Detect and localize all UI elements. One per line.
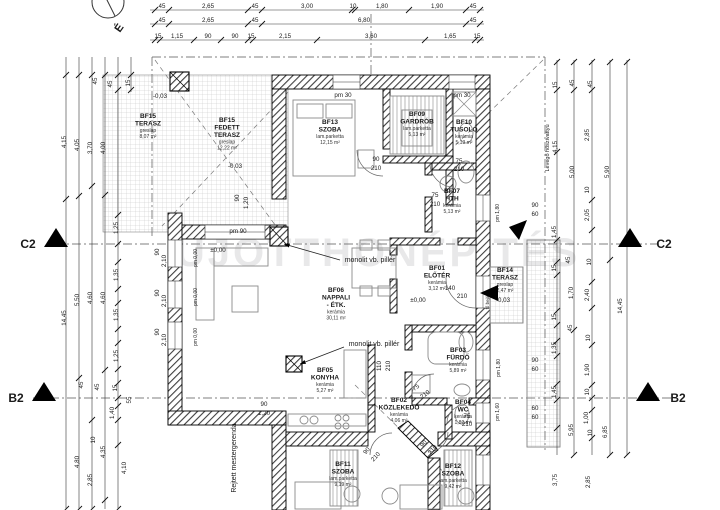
dim-text: 4,00 bbox=[100, 141, 107, 154]
dim-text: 2,10 bbox=[161, 333, 168, 346]
section-marker-triangle bbox=[44, 228, 68, 247]
dim-text: 1,35 bbox=[551, 341, 558, 354]
section-marker-triangle bbox=[32, 382, 56, 401]
wall bbox=[383, 89, 390, 149]
dim-text: pm 30 bbox=[453, 92, 471, 99]
annotation-text: monolit vb. pillér bbox=[349, 341, 400, 348]
dim-text: 45 bbox=[94, 383, 101, 390]
dim-text: 5,95 bbox=[568, 423, 575, 436]
north-arrow-layer: É bbox=[92, 0, 127, 35]
dim-text: 60 bbox=[532, 414, 539, 421]
dim-text: 10 bbox=[90, 436, 97, 443]
dim-text: 45 bbox=[92, 77, 99, 84]
dim-text: 15 bbox=[474, 33, 481, 40]
dim-text: pm 30 bbox=[334, 92, 352, 99]
dim-text: 1,25 bbox=[113, 221, 120, 234]
dim-text: 2,40 bbox=[584, 288, 591, 301]
annotation-text: monolit vb. pillér bbox=[345, 257, 396, 264]
dim-text: 10 bbox=[587, 429, 594, 436]
wall bbox=[368, 405, 375, 432]
dim-text: 2,15 bbox=[279, 33, 292, 40]
dim-text: pm 1,60 bbox=[495, 403, 501, 421]
room-name: WC bbox=[458, 407, 469, 414]
dim-text: 210 bbox=[385, 360, 392, 371]
dim-text: 1,45 bbox=[551, 225, 558, 238]
dim-text: 10 bbox=[584, 388, 591, 395]
dim-text: 6,80 bbox=[358, 17, 371, 24]
dim-text: 4,15 bbox=[552, 140, 559, 153]
dim-text: 45 bbox=[159, 3, 166, 10]
dim-text: 4,60 bbox=[100, 291, 107, 304]
room-name: NAPPALI bbox=[322, 295, 350, 302]
dim-text: 210 bbox=[371, 165, 382, 172]
dim-text: 60 bbox=[532, 405, 539, 412]
furniture bbox=[360, 286, 372, 296]
section-marker-triangle bbox=[618, 228, 642, 247]
dim-text: 110 bbox=[376, 361, 383, 371]
dim-text: 10 bbox=[584, 186, 591, 193]
dim-text: 2,85 bbox=[585, 475, 592, 488]
dim-text: 14,45 bbox=[617, 298, 624, 314]
room-name: BF03 bbox=[450, 347, 466, 354]
dim-text: 5,00 bbox=[569, 165, 576, 178]
dim-text: 210 bbox=[370, 450, 382, 463]
room-name: BF13 bbox=[322, 119, 338, 126]
dim-text: 90 bbox=[205, 33, 212, 40]
room-name: BF01 bbox=[429, 265, 445, 272]
room-name: TERASZ bbox=[492, 275, 518, 282]
furniture bbox=[232, 286, 258, 312]
room-area: 3,12 m² bbox=[429, 286, 446, 292]
dim-text: 4,05 bbox=[74, 138, 81, 151]
dim-text: 45 bbox=[470, 3, 477, 10]
room-name: SZOBA bbox=[332, 469, 355, 476]
dim-text: 1,40 bbox=[109, 406, 116, 419]
dim-text: 140 bbox=[445, 285, 456, 292]
furniture bbox=[378, 286, 390, 296]
room-name: BF10 bbox=[456, 119, 472, 126]
dim-text: 4,10 bbox=[121, 461, 128, 474]
room-area: 1,80 m² bbox=[455, 420, 472, 426]
room-name: BF14 bbox=[497, 267, 513, 274]
room-name: TUSOLÓ bbox=[450, 125, 477, 134]
wall bbox=[383, 156, 453, 163]
dim-text: pm 0,00 bbox=[193, 249, 199, 267]
room-name: BF06 bbox=[328, 287, 344, 294]
dim-text: 90 bbox=[532, 357, 539, 364]
wall bbox=[412, 325, 476, 332]
dim-text: 45 bbox=[107, 80, 114, 87]
furniture bbox=[300, 416, 308, 424]
furniture bbox=[382, 488, 398, 504]
dim-text: 210 bbox=[454, 166, 465, 173]
room-name: SZOBA bbox=[319, 127, 342, 134]
dim-text: 45 bbox=[587, 80, 594, 87]
dim-text: 1,00 bbox=[583, 411, 590, 424]
leader-line bbox=[300, 347, 344, 364]
dim-text: 90 bbox=[261, 401, 268, 408]
dim-text: 2,10 bbox=[161, 294, 168, 307]
wall bbox=[445, 405, 452, 439]
dim-text: 2,65 bbox=[202, 3, 215, 10]
room-name: TERASZ bbox=[135, 121, 161, 128]
room-area: 5,27 m² bbox=[317, 388, 334, 394]
dim-text: 90 bbox=[154, 289, 161, 296]
room-label-bf07: BF07HTHkerámia5,13 m² bbox=[443, 188, 461, 215]
dim-text: 6,85 bbox=[602, 425, 609, 438]
wall bbox=[368, 345, 375, 405]
floor-plan-page: ÚJOTTHONÉPÍTÉS452,65453,00101,801,904545… bbox=[0, 0, 720, 510]
dim-text: 14,45 bbox=[61, 310, 68, 326]
dim-text: 4,80 bbox=[74, 455, 81, 468]
room-area: 12,22 m² bbox=[217, 146, 237, 152]
dim-text: 1,15 bbox=[171, 33, 184, 40]
dim-text: 90 bbox=[532, 202, 539, 209]
room-name: TERASZ bbox=[214, 132, 240, 139]
terrace-grid bbox=[103, 75, 288, 232]
furniture bbox=[326, 104, 352, 118]
room-name: GARDRÓB bbox=[400, 117, 434, 126]
furniture bbox=[343, 415, 349, 421]
furniture bbox=[310, 416, 318, 424]
dim-text: 4,15 bbox=[61, 135, 68, 148]
wall bbox=[272, 425, 286, 510]
dim-text: ±0,00 bbox=[410, 297, 426, 304]
dim-text: 45 bbox=[159, 17, 166, 24]
door-swing bbox=[370, 433, 392, 455]
furniture bbox=[454, 384, 470, 396]
wall bbox=[390, 238, 440, 245]
furniture bbox=[344, 350, 366, 398]
dim-text: 75 bbox=[432, 192, 439, 199]
dim-text: 15 bbox=[551, 264, 558, 271]
dim-text: 45 bbox=[252, 17, 259, 24]
room-area: 30,11 m² bbox=[326, 316, 346, 322]
dim-text: 1,35 bbox=[113, 308, 120, 321]
room-name: KONYHA bbox=[311, 375, 339, 382]
room-area: 5,13 m² bbox=[456, 140, 473, 146]
dim-text: pm 0,00 bbox=[193, 288, 199, 306]
room-area: 9,19 m² bbox=[335, 482, 352, 488]
wall bbox=[286, 432, 368, 446]
dim-text: 60 bbox=[532, 211, 539, 218]
room-label-bf03: BF03FÜRDŐkerámia5,89 m² bbox=[446, 347, 469, 374]
wall bbox=[458, 238, 476, 245]
dim-text: 15 bbox=[551, 313, 558, 320]
dim-text: ±0,00 bbox=[210, 247, 226, 254]
room-name: BF07 bbox=[444, 188, 460, 195]
floor-plan-canvas: ÚJOTTHONÉPÍTÉS452,65453,00101,801,904545… bbox=[0, 0, 720, 510]
room-label-bf10: BF10TUSOLÓkerámia5,13 m² bbox=[450, 119, 477, 146]
room-area: 2,47 m² bbox=[497, 288, 514, 294]
dim-text: 90 bbox=[154, 328, 161, 335]
dim-text: 210 bbox=[430, 201, 441, 208]
section-marker-label: C2 bbox=[20, 237, 36, 251]
dim-text: 1,20 bbox=[258, 410, 271, 417]
dim-text: 15 bbox=[125, 79, 132, 86]
dim-text: 1,70 bbox=[568, 286, 575, 299]
room-name: HTH bbox=[445, 196, 459, 203]
north-compass-needle bbox=[101, 0, 115, 16]
dim-text: 1,65 bbox=[444, 33, 457, 40]
furniture bbox=[335, 415, 341, 421]
room-area: 4,06 m² bbox=[391, 418, 408, 424]
dim-text: 3,70 bbox=[87, 141, 94, 154]
dim-text: 15 bbox=[552, 81, 559, 88]
dim-text: 15 bbox=[112, 384, 119, 391]
dim-text: 1,35 bbox=[113, 268, 120, 281]
furniture bbox=[297, 104, 323, 118]
dim-text: 4,60 bbox=[87, 291, 94, 304]
room-name: - ÉTK. bbox=[327, 300, 346, 309]
dim-text: pm 1,80 bbox=[496, 359, 502, 377]
dim-text: -0,03 bbox=[153, 93, 168, 100]
dim-text: 90 bbox=[234, 194, 241, 201]
dim-text: 2,85 bbox=[87, 473, 94, 486]
dim-text: 45 bbox=[569, 79, 576, 86]
dim-text: 3,60 bbox=[365, 33, 378, 40]
dim-text: 2,05 bbox=[584, 208, 591, 221]
dim-text: 5,90 bbox=[604, 165, 611, 178]
room-name: BF11 bbox=[335, 461, 351, 468]
dim-text: 90 bbox=[362, 446, 372, 456]
dim-text: 15 bbox=[248, 33, 255, 40]
room-name: BF15 bbox=[219, 117, 235, 124]
dim-text: 10 bbox=[585, 334, 592, 341]
dim-text: 1,25 bbox=[113, 349, 120, 362]
dim-text: 55 bbox=[126, 396, 133, 403]
dim-text: 3,75 bbox=[552, 473, 559, 486]
dim-text: 45 bbox=[565, 256, 572, 263]
room-area: 5,13 m² bbox=[409, 132, 426, 138]
wall bbox=[272, 89, 286, 199]
dim-text: 1,90 bbox=[431, 3, 444, 10]
dim-text: 5,50 bbox=[74, 293, 81, 306]
room-name: KÖZLEKEDŐ bbox=[379, 403, 420, 412]
dim-text: 10 bbox=[586, 258, 593, 265]
room-name: BF12 bbox=[445, 463, 461, 470]
dim-text: 2,65 bbox=[202, 17, 215, 24]
dim-text: 90 bbox=[154, 248, 161, 255]
dim-text: 210 bbox=[457, 293, 468, 300]
dim-text: 15 bbox=[155, 33, 162, 40]
annotation-text: Rejtett mestergerenda bbox=[231, 423, 238, 492]
door-swing bbox=[357, 150, 383, 176]
north-label: É bbox=[112, 21, 127, 34]
room-area: 5,13 m² bbox=[444, 209, 461, 215]
room-name: BF02 bbox=[391, 397, 407, 404]
room-name: FEDETT bbox=[214, 125, 239, 132]
section-marker-label: C2 bbox=[656, 237, 672, 251]
dim-text: 1,80 bbox=[376, 3, 389, 10]
room-name: BF09 bbox=[409, 111, 425, 118]
dim-text: 45 bbox=[567, 324, 574, 331]
room-area: 9,42 m² bbox=[445, 484, 462, 490]
wall bbox=[405, 325, 412, 350]
room-label-bf06: BF06NAPPALI- ÉTK.kerámia30,11 m² bbox=[322, 287, 350, 322]
wall bbox=[428, 458, 440, 510]
room-label-bf13: BF13SZOBAlam.parketta12,15 m² bbox=[316, 119, 344, 146]
dim-text: pm 1,80 bbox=[495, 204, 501, 222]
section-marker-triangle bbox=[636, 382, 660, 401]
dim-text: 2,10 bbox=[161, 254, 168, 267]
dim-text: 60 bbox=[532, 366, 539, 373]
dim-text: 90 bbox=[373, 156, 380, 163]
dim-text: 10 bbox=[350, 3, 357, 10]
dim-text: -0,03 bbox=[496, 297, 511, 304]
dim-text: 3,00 bbox=[301, 3, 314, 10]
dim-text: 1,20 bbox=[243, 196, 250, 209]
room-name: ELŐTÉR bbox=[424, 271, 451, 280]
room-name: SZOBA bbox=[442, 471, 465, 478]
annotation-text: Levegő hőszivattyú bbox=[545, 124, 551, 171]
room-area: 12,15 m² bbox=[320, 140, 340, 146]
room-area: 5,89 m² bbox=[450, 368, 467, 374]
wall bbox=[405, 372, 412, 398]
dim-text: 90 bbox=[232, 33, 239, 40]
dim-text: 45 bbox=[252, 3, 259, 10]
dim-text: pm 90 bbox=[229, 228, 247, 235]
dim-text: -0,03 bbox=[228, 163, 243, 170]
room-name: BF15 bbox=[140, 113, 156, 120]
room-label-bf05: BF05KONYHAkerámia5,27 m² bbox=[311, 367, 339, 394]
section-marker-label: B2 bbox=[670, 391, 686, 405]
dim-text: pm 0,00 bbox=[193, 328, 199, 346]
room-name: BF05 bbox=[317, 367, 333, 374]
dim-text: 1,45 bbox=[551, 385, 558, 398]
dim-text: 75 bbox=[456, 158, 463, 165]
section-marker-label: B2 bbox=[8, 391, 24, 405]
dim-text: 4,35 bbox=[100, 445, 107, 458]
dim-text: 45 bbox=[470, 17, 477, 24]
room-name: BF04 bbox=[455, 399, 471, 406]
dim-text: 45 bbox=[78, 381, 85, 388]
room-name: FÜRDŐ bbox=[446, 353, 469, 362]
room-area: 8,07 m² bbox=[140, 134, 157, 140]
dim-text: 2,85 bbox=[584, 128, 591, 141]
dim-text: 1,90 bbox=[584, 363, 591, 376]
